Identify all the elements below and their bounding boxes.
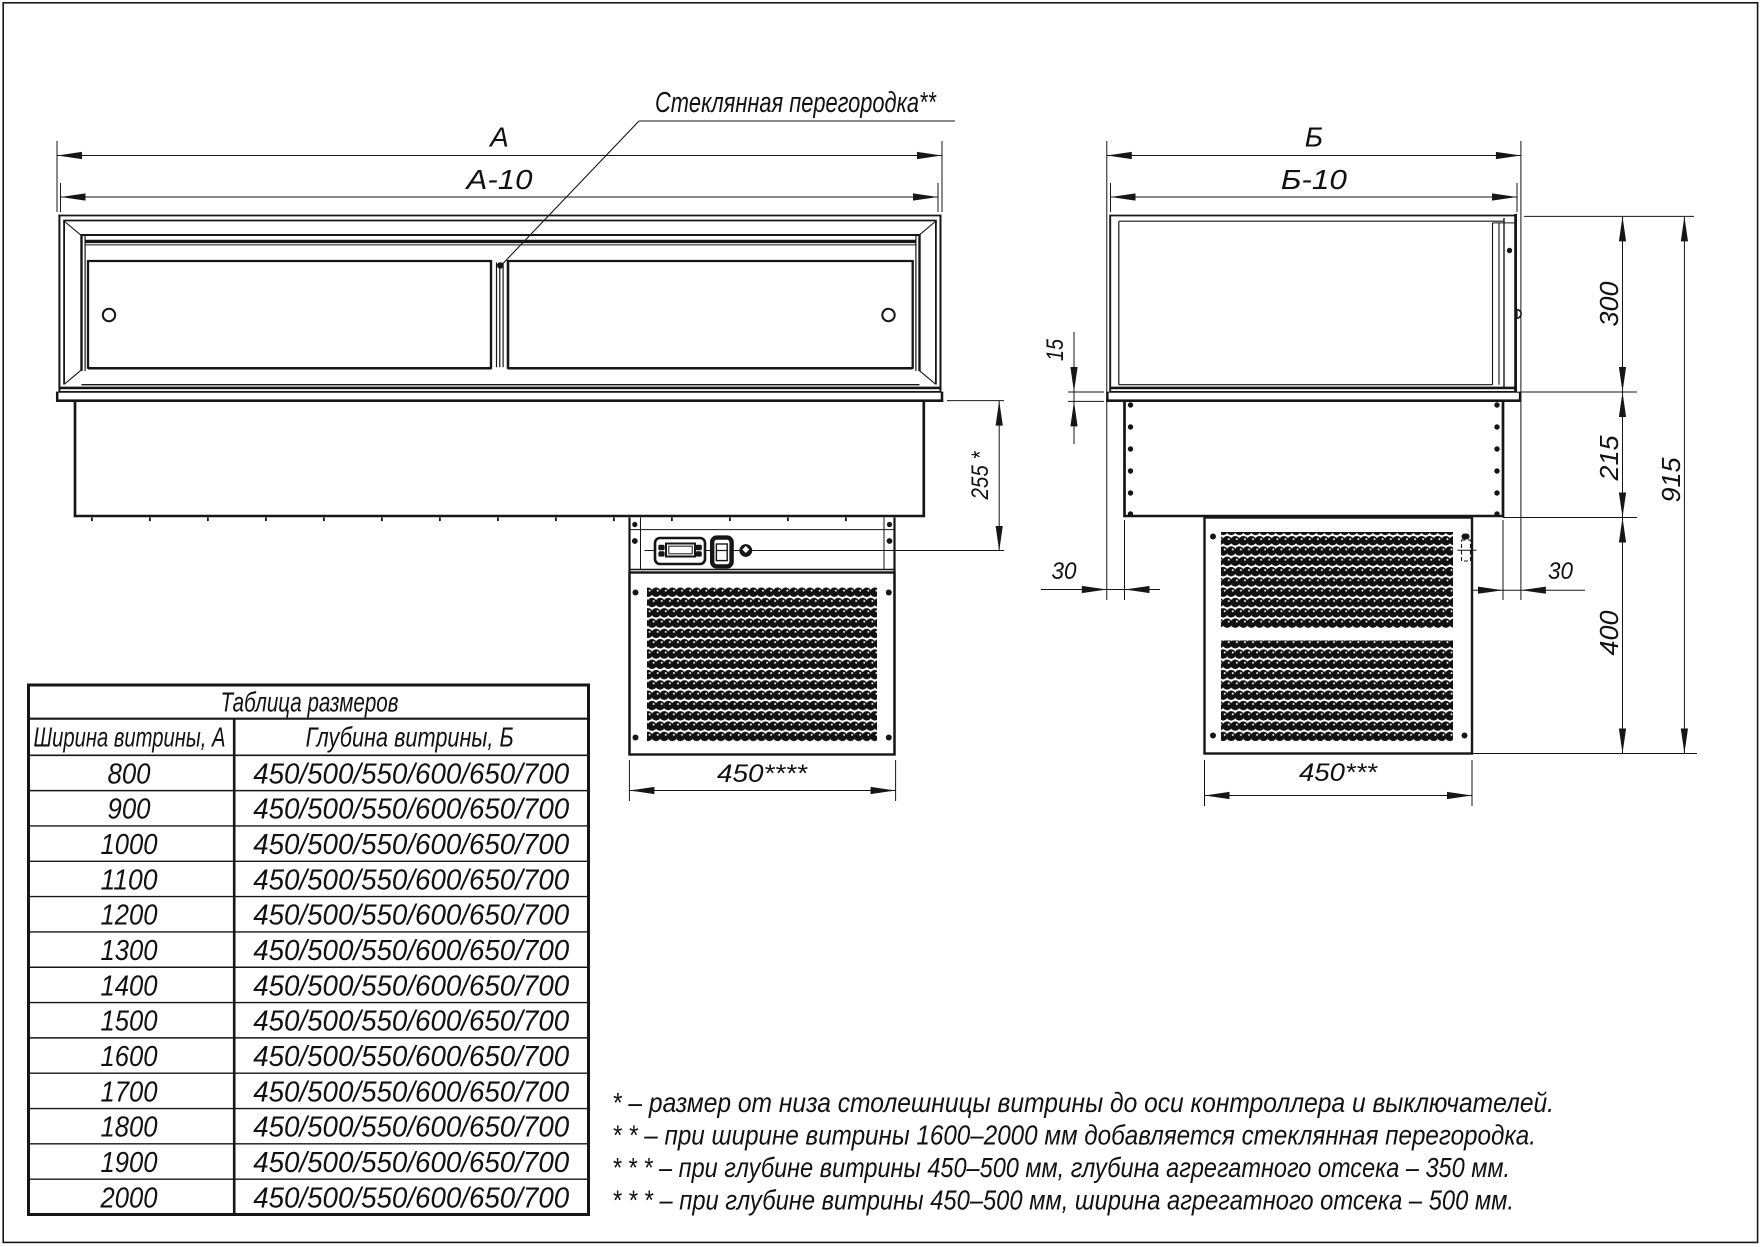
svg-text:915: 915 (1658, 457, 1686, 503)
svg-text:15: 15 (1042, 339, 1069, 361)
svg-text:Б: Б (1305, 122, 1323, 153)
svg-text:Таблица размеров: Таблица размеров (221, 687, 399, 718)
svg-text:450/500/550/600/650/700: 450/500/550/600/650/700 (253, 1112, 569, 1144)
svg-text:255 *: 255 * (967, 450, 994, 500)
svg-text:300: 300 (1596, 282, 1624, 327)
svg-text:450/500/550/600/650/700: 450/500/550/600/650/700 (253, 1182, 569, 1214)
svg-text:450****: 450**** (717, 760, 808, 788)
svg-text:450/500/550/600/650/700: 450/500/550/600/650/700 (253, 1041, 569, 1073)
svg-text:450/500/550/600/650/700: 450/500/550/600/650/700 (253, 758, 569, 790)
svg-text:1200: 1200 (101, 900, 158, 932)
svg-text:Стеклянная перегородка**: Стеклянная перегородка** (655, 87, 937, 119)
svg-text:1900: 1900 (101, 1147, 158, 1179)
svg-text:1500: 1500 (101, 1006, 158, 1038)
svg-text:* * * – при глубине витрины 45: * * * – при глубине витрины 450–500 мм, … (612, 1152, 1510, 1183)
svg-text:* – размер от низа столешницы: * – размер от низа столешницы витрины до… (612, 1087, 1554, 1118)
svg-text:30: 30 (1052, 558, 1077, 585)
svg-text:450/500/550/600/650/700: 450/500/550/600/650/700 (253, 794, 569, 826)
svg-text:450/500/550/600/650/700: 450/500/550/600/650/700 (253, 900, 569, 932)
svg-text:800: 800 (108, 758, 151, 790)
svg-text:Глубина витрины, Б: Глубина витрины, Б (306, 721, 514, 752)
svg-text:215: 215 (1596, 435, 1624, 482)
svg-text:400: 400 (1596, 611, 1624, 656)
svg-text:1300: 1300 (101, 935, 158, 967)
svg-text:А-10: А-10 (464, 164, 533, 195)
svg-text:* * – при ширине витрины 1600–: * * – при ширине витрины 1600–2000 мм до… (612, 1120, 1536, 1151)
svg-text:450/500/550/600/650/700: 450/500/550/600/650/700 (253, 970, 569, 1002)
svg-text:1700: 1700 (101, 1076, 158, 1108)
svg-text:450***: 450*** (1299, 759, 1378, 787)
svg-text:1400: 1400 (101, 970, 158, 1002)
svg-text:30: 30 (1548, 558, 1573, 585)
svg-text:* * * – при глубине витрины 45: * * * – при глубине витрины 450–500 мм, … (612, 1185, 1514, 1216)
svg-text:450/500/550/600/650/700: 450/500/550/600/650/700 (253, 935, 569, 967)
svg-text:2000: 2000 (100, 1182, 158, 1214)
svg-text:1100: 1100 (101, 864, 158, 896)
svg-text:450/500/550/600/650/700: 450/500/550/600/650/700 (253, 1076, 569, 1108)
svg-text:1000: 1000 (101, 829, 158, 861)
svg-text:Б-10: Б-10 (1281, 164, 1347, 195)
svg-text:1800: 1800 (101, 1112, 158, 1144)
svg-text:450/500/550/600/650/700: 450/500/550/600/650/700 (253, 1006, 569, 1038)
svg-text:1600: 1600 (101, 1041, 158, 1073)
svg-text:900: 900 (108, 794, 151, 826)
svg-text:450/500/550/600/650/700: 450/500/550/600/650/700 (253, 1147, 569, 1179)
svg-text:А: А (488, 122, 509, 153)
svg-text:450/500/550/600/650/700: 450/500/550/600/650/700 (253, 864, 569, 896)
svg-text:450/500/550/600/650/700: 450/500/550/600/650/700 (253, 829, 569, 861)
svg-text:Ширина витрины, А: Ширина витрины, А (34, 721, 226, 752)
